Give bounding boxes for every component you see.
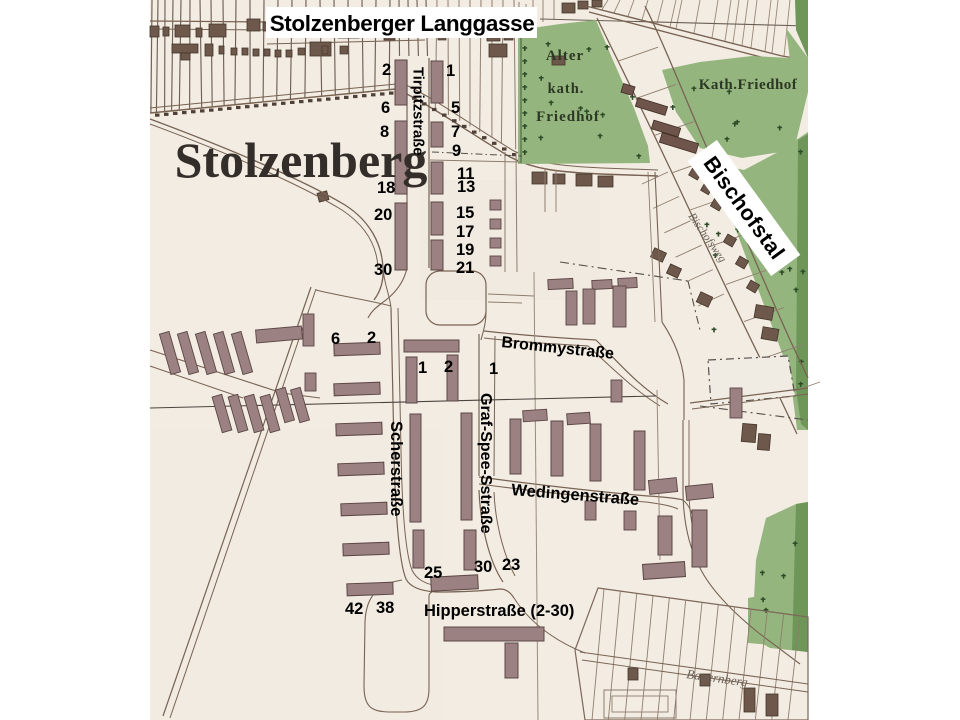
svg-text:Alter: Alter <box>546 48 584 64</box>
svg-text:Graf-Spee-Sstraße: Graf-Spee-Sstraße <box>477 393 494 534</box>
svg-text:15: 15 <box>456 204 474 222</box>
svg-text:8: 8 <box>380 123 389 141</box>
svg-text:5: 5 <box>451 99 460 117</box>
svg-text:Friedhof: Friedhof <box>536 109 600 125</box>
svg-text:Scherstraße: Scherstraße <box>387 421 405 516</box>
svg-text:25: 25 <box>424 564 442 582</box>
svg-text:Tirpitzstraße: Tirpitzstraße <box>410 67 426 156</box>
svg-text:2: 2 <box>382 61 391 79</box>
svg-text:1: 1 <box>418 359 427 377</box>
svg-text:kath.: kath. <box>548 81 585 97</box>
svg-text:30: 30 <box>474 558 492 576</box>
svg-text:7: 7 <box>451 123 460 141</box>
svg-text:9: 9 <box>452 142 461 160</box>
svg-text:6: 6 <box>331 330 340 348</box>
svg-text:20: 20 <box>374 206 392 224</box>
svg-text:17: 17 <box>456 223 474 241</box>
svg-text:2: 2 <box>367 329 376 347</box>
svg-text:21: 21 <box>456 259 474 277</box>
svg-text:2: 2 <box>444 358 453 376</box>
svg-text:23: 23 <box>502 556 520 574</box>
svg-text:42: 42 <box>345 600 363 618</box>
svg-text:Hipperstraße (2-30): Hipperstraße (2-30) <box>424 602 574 620</box>
svg-text:Kath.Friedhof: Kath.Friedhof <box>699 77 798 93</box>
svg-text:13: 13 <box>457 178 475 196</box>
svg-text:19: 19 <box>456 241 474 259</box>
svg-text:38: 38 <box>376 599 394 617</box>
svg-text:1: 1 <box>489 360 498 378</box>
svg-text:Stolzenberger Langgasse: Stolzenberger Langgasse <box>270 11 535 36</box>
svg-text:6: 6 <box>381 99 390 117</box>
svg-text:30: 30 <box>374 261 392 279</box>
svg-text:18: 18 <box>377 179 395 197</box>
svg-text:1: 1 <box>446 62 455 80</box>
